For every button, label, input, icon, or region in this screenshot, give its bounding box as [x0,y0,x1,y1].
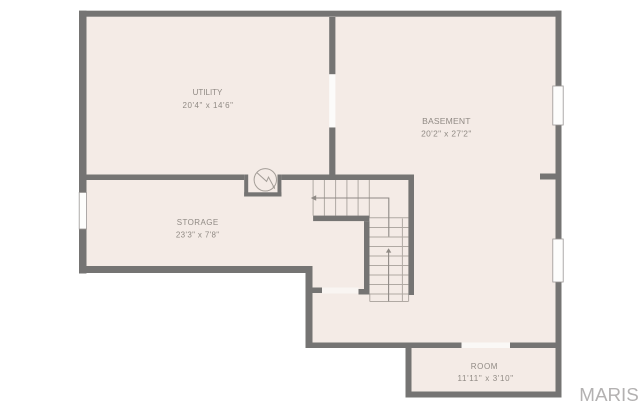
svg-text:STORAGE: STORAGE [177,218,219,227]
svg-text:20'4" x 14'6": 20'4" x 14'6" [182,101,233,110]
svg-text:23'3" x 7'8": 23'3" x 7'8" [176,231,220,240]
svg-text:20'2" x 27'2": 20'2" x 27'2" [421,129,471,139]
svg-text:11'11" x 3'10": 11'11" x 3'10" [457,374,513,383]
svg-text:UTILITY: UTILITY [193,88,223,97]
svg-text:ROOM: ROOM [471,362,498,371]
svg-text:MARIS: MARIS [579,384,638,405]
svg-text:BASEMENT: BASEMENT [422,116,471,126]
